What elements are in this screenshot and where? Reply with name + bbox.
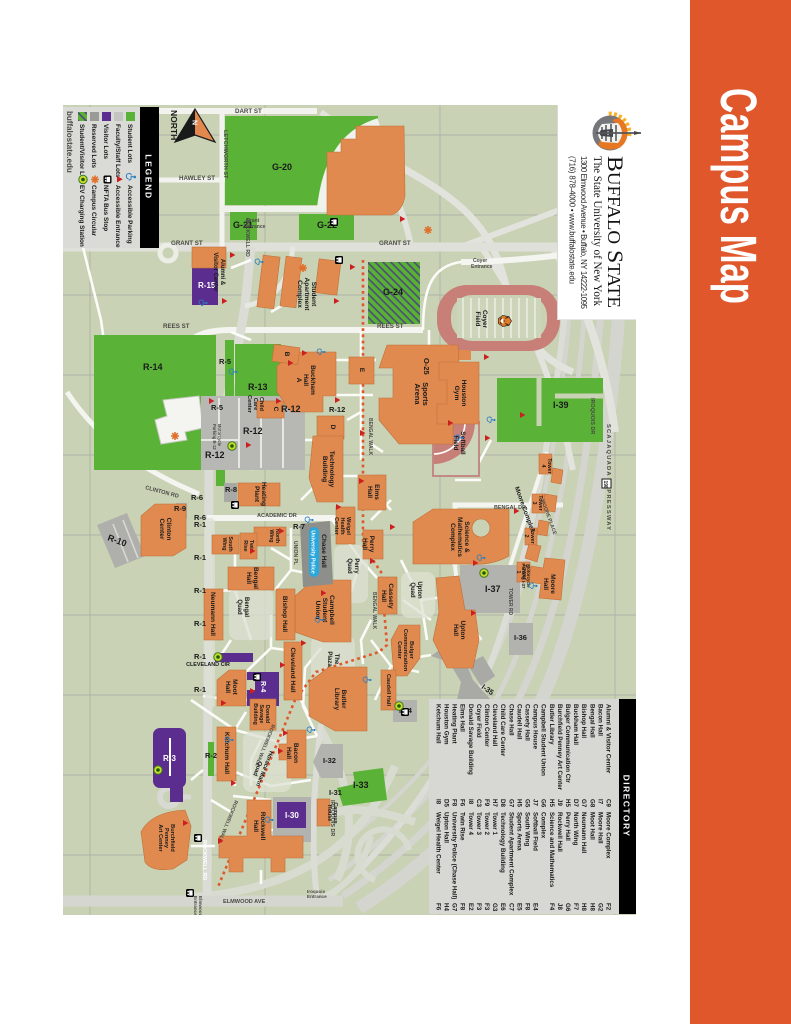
svg-text:R-1: R-1 bbox=[194, 586, 206, 595]
svg-text:E4: E4 bbox=[532, 903, 539, 911]
svg-text:Motorcycle: Motorcycle bbox=[217, 424, 222, 447]
svg-text:R-12: R-12 bbox=[329, 405, 345, 414]
svg-text:DART ST: DART ST bbox=[235, 108, 262, 115]
svg-text:Complex: Complex bbox=[540, 812, 547, 839]
svg-text:G6: G6 bbox=[540, 799, 547, 808]
svg-text:Complex: Complex bbox=[296, 280, 303, 308]
svg-text:University Police (Chase Hall): University Police (Chase Hall) bbox=[451, 812, 458, 899]
svg-text:Rise: Rise bbox=[242, 540, 248, 551]
svg-text:Technology: Technology bbox=[328, 451, 335, 488]
svg-text:Buckham: Buckham bbox=[309, 365, 316, 395]
svg-text:CLEVELAND CIR: CLEVELAND CIR bbox=[186, 662, 230, 668]
svg-text:R-12: R-12 bbox=[205, 450, 225, 460]
svg-text:REES ST: REES ST bbox=[163, 323, 190, 330]
svg-text:Campus Circular: Campus Circular bbox=[90, 185, 97, 237]
svg-text:Clinton: Clinton bbox=[165, 518, 172, 541]
svg-text:Bishop Hall: Bishop Hall bbox=[580, 704, 587, 738]
svg-text:F6: F6 bbox=[459, 799, 466, 807]
svg-text:Tower: Tower bbox=[537, 495, 543, 511]
svg-text:Cleveland Hall: Cleveland Hall bbox=[491, 704, 498, 747]
svg-text:E: E bbox=[358, 368, 365, 373]
svg-text:H5: H5 bbox=[548, 799, 555, 807]
svg-text:Quad: Quad bbox=[409, 582, 415, 598]
svg-text:Savage: Savage bbox=[258, 705, 264, 724]
svg-text:I-33: I-33 bbox=[353, 780, 369, 790]
svg-text:G3: G3 bbox=[491, 903, 498, 912]
svg-text:3: 3 bbox=[531, 502, 537, 505]
svg-text:Entrance: Entrance bbox=[193, 896, 198, 916]
svg-text:House: House bbox=[326, 805, 332, 821]
svg-text:Bengal: Bengal bbox=[243, 597, 249, 617]
svg-text:Campus: Campus bbox=[332, 802, 338, 823]
svg-text:C: C bbox=[272, 407, 279, 412]
svg-text:Moore Hall: Moore Hall bbox=[596, 812, 603, 844]
svg-text:B: B bbox=[283, 352, 290, 357]
svg-text:G7: G7 bbox=[451, 903, 458, 912]
svg-text:I-32: I-32 bbox=[323, 756, 336, 765]
svg-text:A: A bbox=[295, 378, 302, 383]
svg-text:LEGEND: LEGEND bbox=[144, 154, 154, 199]
svg-text:Clinton Center: Clinton Center bbox=[483, 704, 490, 747]
svg-text:Gym: Gym bbox=[453, 386, 460, 401]
svg-text:Science &: Science & bbox=[463, 521, 470, 553]
svg-text:Entrance: Entrance bbox=[244, 224, 266, 230]
svg-text:J8: J8 bbox=[556, 903, 563, 910]
svg-text:Cleveland Hall: Cleveland Hall bbox=[289, 647, 296, 692]
svg-text:buffalostate.edu: buffalostate.edu bbox=[65, 111, 74, 173]
svg-text:Caudell Hall: Caudell Hall bbox=[385, 674, 391, 706]
svg-text:J7: J7 bbox=[532, 799, 539, 806]
svg-text:Butler: Butler bbox=[340, 689, 347, 708]
svg-text:G7: G7 bbox=[580, 799, 587, 808]
svg-text:Alumni & Visitor Center: Alumni & Visitor Center bbox=[605, 704, 612, 774]
svg-text:Butler Library: Butler Library bbox=[548, 704, 555, 745]
svg-text:Caudell Hall: Caudell Hall bbox=[515, 704, 522, 740]
svg-text:GRANT ST: GRANT ST bbox=[379, 240, 411, 247]
svg-text:Campus Map: Campus Map bbox=[710, 88, 767, 304]
svg-text:R-7: R-7 bbox=[293, 522, 305, 531]
svg-text:Parking I-37: Parking I-37 bbox=[521, 564, 526, 589]
svg-text:Hall: Hall bbox=[542, 578, 549, 590]
svg-text:Reserved Lots: Reserved Lots bbox=[90, 124, 97, 168]
svg-text:Cassety: Cassety bbox=[387, 583, 394, 609]
svg-text:F4: F4 bbox=[548, 903, 555, 911]
svg-text:Bishop Hall: Bishop Hall bbox=[281, 596, 288, 632]
svg-text:F2: F2 bbox=[605, 903, 612, 911]
svg-text:R-8: R-8 bbox=[225, 485, 237, 494]
svg-text:HAWLEY ST: HAWLEY ST bbox=[179, 175, 215, 182]
svg-text:Technology Building: Technology Building bbox=[499, 812, 506, 873]
svg-text:Tower 3: Tower 3 bbox=[475, 812, 482, 835]
svg-text:G6: G6 bbox=[564, 903, 571, 912]
svg-text:R-9: R-9 bbox=[174, 504, 186, 513]
svg-text:IROQUOIS DR: IROQUOIS DR bbox=[589, 398, 595, 434]
svg-text:Ketchum Hall: Ketchum Hall bbox=[223, 732, 230, 774]
svg-text:Hall: Hall bbox=[224, 681, 231, 693]
svg-text:G7: G7 bbox=[507, 799, 514, 808]
svg-text:H5: H5 bbox=[564, 799, 571, 807]
svg-text:F7: F7 bbox=[572, 903, 579, 911]
svg-text:Center: Center bbox=[333, 517, 339, 536]
svg-text:Hall: Hall bbox=[285, 747, 292, 759]
svg-text:R-1: R-1 bbox=[194, 652, 206, 661]
svg-text:Plaza: Plaza bbox=[326, 651, 332, 667]
svg-text:Tower: Tower bbox=[546, 458, 552, 474]
svg-text:Perry: Perry bbox=[353, 558, 359, 574]
svg-text:Moot Hall: Moot Hall bbox=[588, 812, 595, 840]
svg-text:G8: G8 bbox=[588, 799, 595, 808]
svg-text:Health: Health bbox=[339, 517, 345, 535]
svg-text:I8: I8 bbox=[467, 799, 474, 805]
svg-text:E2: E2 bbox=[467, 903, 474, 911]
svg-text:G-24: G-24 bbox=[383, 287, 403, 297]
svg-text:Entrance: Entrance bbox=[307, 894, 327, 899]
svg-text:The State University of New Yo: The State University of New York bbox=[591, 156, 603, 306]
svg-text:BENGAL WALK: BENGAL WALK bbox=[371, 592, 377, 630]
svg-text:Accessible Parking: Accessible Parking bbox=[126, 185, 133, 244]
svg-text:Buckham Hall: Buckham Hall bbox=[572, 704, 579, 745]
svg-text:H5: H5 bbox=[515, 799, 522, 807]
svg-text:Moore: Moore bbox=[549, 574, 556, 594]
svg-text:REES ST: REES ST bbox=[377, 323, 404, 330]
svg-text:(716) 878-4000 • www.buffalost: (716) 878-4000 • www.buffalostate.edu bbox=[568, 156, 577, 284]
svg-text:Chase Hall: Chase Hall bbox=[507, 704, 514, 736]
svg-text:Quad: Quad bbox=[346, 558, 352, 574]
svg-text:C7: C7 bbox=[507, 903, 514, 911]
svg-text:Moot: Moot bbox=[231, 679, 238, 696]
svg-text:Science and Mathematics: Science and Mathematics bbox=[548, 812, 555, 888]
svg-text:H7: H7 bbox=[491, 799, 498, 807]
svg-text:Bacon: Bacon bbox=[292, 743, 299, 763]
svg-text:ACADEMIC DR: ACADEMIC DR bbox=[257, 513, 297, 519]
svg-text:Elmwood: Elmwood bbox=[198, 896, 203, 917]
svg-text:Apartment: Apartment bbox=[303, 278, 310, 312]
svg-text:Alumni &: Alumni & bbox=[219, 259, 225, 286]
svg-text:Hall: Hall bbox=[366, 486, 373, 498]
svg-text:Twin Rise: Twin Rise bbox=[459, 812, 466, 841]
svg-text:Faculty/Staff Lots: Faculty/Staff Lots bbox=[114, 124, 121, 178]
svg-text:4: 4 bbox=[540, 465, 546, 468]
svg-text:Quad: Quad bbox=[236, 599, 242, 615]
svg-text:Neumann Hall: Neumann Hall bbox=[209, 592, 216, 636]
svg-text:GRANT ST: GRANT ST bbox=[171, 240, 203, 247]
svg-text:South: South bbox=[227, 536, 233, 551]
svg-text:Elms: Elms bbox=[373, 484, 380, 500]
svg-text:I-37: I-37 bbox=[485, 584, 501, 594]
svg-text:R-2: R-2 bbox=[205, 751, 217, 760]
svg-text:The: The bbox=[333, 654, 339, 665]
svg-text:Tower 1: Tower 1 bbox=[491, 812, 498, 835]
svg-text:Center: Center bbox=[158, 519, 165, 540]
svg-text:D8: D8 bbox=[499, 799, 506, 807]
svg-text:N: N bbox=[191, 120, 198, 125]
svg-text:SCAJAQUADA EXPRESSWAY: SCAJAQUADA EXPRESSWAY bbox=[605, 424, 611, 530]
svg-text:Art Center: Art Center bbox=[157, 824, 163, 852]
svg-text:R-5: R-5 bbox=[211, 403, 223, 412]
svg-text:Campus House: Campus House bbox=[532, 704, 539, 750]
svg-text:Child: Child bbox=[258, 397, 264, 412]
svg-text:F8: F8 bbox=[451, 799, 458, 807]
svg-text:Upton Hall: Upton Hall bbox=[443, 812, 450, 843]
svg-text:1300 Elmwood Avenue • Buffalo,: 1300 Elmwood Avenue • Buffalo, NY 14222-… bbox=[579, 156, 588, 310]
svg-text:Penney: Penney bbox=[163, 828, 169, 849]
svg-text:Weigel: Weigel bbox=[345, 517, 351, 535]
svg-text:R-1: R-1 bbox=[194, 553, 206, 562]
svg-text:E5: E5 bbox=[515, 903, 522, 911]
svg-text:H8: H8 bbox=[588, 903, 595, 911]
svg-text:Moore Complex: Moore Complex bbox=[605, 812, 612, 859]
svg-text:Upton: Upton bbox=[459, 620, 466, 639]
svg-text:F3: F3 bbox=[483, 903, 490, 911]
svg-text:F3: F3 bbox=[475, 903, 482, 911]
svg-text:H4: H4 bbox=[443, 903, 450, 911]
svg-text:Visitor Center: Visitor Center bbox=[212, 252, 218, 292]
svg-text:Student/Visitor Lot: Student/Visitor Lot bbox=[78, 124, 85, 182]
svg-text:Coyer: Coyer bbox=[481, 310, 488, 329]
svg-text:North Wing: North Wing bbox=[572, 812, 579, 845]
svg-text:F8: F8 bbox=[524, 903, 531, 911]
svg-text:Hall: Hall bbox=[380, 590, 387, 602]
svg-text:University Police: University Police bbox=[310, 530, 316, 573]
svg-text:Student: Student bbox=[310, 282, 317, 307]
svg-text:Wing: Wing bbox=[268, 529, 274, 542]
svg-text:2: 2 bbox=[523, 535, 529, 538]
svg-text:Parking B-12: Parking B-12 bbox=[212, 424, 217, 450]
svg-text:Library: Library bbox=[333, 688, 340, 711]
svg-text:Bengal Hall: Bengal Hall bbox=[588, 704, 595, 738]
svg-text:Student Apartment Complex: Student Apartment Complex bbox=[507, 812, 514, 896]
svg-text:Arena: Arena bbox=[413, 384, 422, 406]
svg-text:Bengal: Bengal bbox=[252, 567, 259, 589]
svg-text:Cassety Hall: Cassety Hall bbox=[524, 704, 531, 741]
svg-text:UNION PL: UNION PL bbox=[292, 541, 298, 565]
svg-text:Wing: Wing bbox=[221, 537, 227, 550]
svg-text:TOWER RD: TOWER RD bbox=[507, 588, 513, 616]
svg-text:G2: G2 bbox=[596, 903, 603, 912]
svg-text:Ketchum Hall: Ketchum Hall bbox=[434, 704, 441, 744]
svg-text:F9: F9 bbox=[483, 799, 490, 807]
svg-text:I7: I7 bbox=[596, 799, 603, 805]
svg-text:Rockwell: Rockwell bbox=[259, 812, 266, 841]
svg-text:Softball Field: Softball Field bbox=[532, 812, 539, 851]
svg-text:Center: Center bbox=[396, 641, 402, 660]
svg-text:ROCKWELL RD: ROCKWELL RD bbox=[201, 840, 207, 880]
svg-text:Houston Gym: Houston Gym bbox=[443, 704, 450, 745]
svg-text:R-1: R-1 bbox=[194, 520, 206, 529]
svg-text:Donald: Donald bbox=[264, 705, 270, 723]
svg-text:R-12: R-12 bbox=[243, 426, 263, 436]
svg-text:G-20: G-20 bbox=[272, 162, 292, 172]
svg-text:R-1: R-1 bbox=[194, 619, 206, 628]
svg-text:Building: Building bbox=[321, 456, 328, 482]
svg-text:Complex: Complex bbox=[449, 523, 456, 551]
svg-text:F6: F6 bbox=[434, 903, 441, 911]
svg-text:E6: E6 bbox=[499, 903, 506, 911]
svg-text:Tower 4: Tower 4 bbox=[467, 812, 474, 835]
svg-text:Bulger Communication Ctr: Bulger Communication Ctr bbox=[564, 704, 571, 783]
svg-text:Softball: Softball bbox=[459, 431, 466, 455]
svg-text:Sports: Sports bbox=[421, 382, 430, 405]
svg-text:Houston: Houston bbox=[460, 380, 467, 407]
svg-text:Heating: Heating bbox=[260, 482, 267, 506]
svg-text:Rockwell Hall: Rockwell Hall bbox=[556, 812, 563, 852]
svg-text:H8: H8 bbox=[580, 903, 587, 911]
svg-text:I-30: I-30 bbox=[285, 811, 299, 820]
svg-text:Chase Hall: Chase Hall bbox=[320, 534, 327, 568]
svg-text:C3: C3 bbox=[475, 799, 482, 807]
svg-text:NORTH: NORTH bbox=[169, 110, 179, 140]
svg-text:Field: Field bbox=[474, 312, 481, 327]
svg-text:EV Charging Station: EV Charging Station bbox=[78, 185, 85, 247]
svg-text:Sports Arena: Sports Arena bbox=[515, 812, 522, 851]
svg-text:ELMWOOD AVE: ELMWOOD AVE bbox=[223, 899, 266, 905]
svg-text:DIRECTORY: DIRECTORY bbox=[622, 775, 632, 838]
svg-text:I8: I8 bbox=[434, 799, 441, 805]
svg-text:Bulger: Bulger bbox=[408, 641, 414, 660]
svg-text:NFTA Bus Stop: NFTA Bus Stop bbox=[102, 185, 109, 231]
svg-text:R-12: R-12 bbox=[281, 404, 301, 414]
svg-text:Visitor Lots: Visitor Lots bbox=[102, 124, 109, 159]
svg-text:D7: D7 bbox=[572, 799, 579, 807]
svg-text:Hall: Hall bbox=[452, 624, 459, 636]
svg-text:D: D bbox=[329, 425, 336, 430]
svg-text:I-39: I-39 bbox=[553, 400, 569, 410]
svg-text:BENGAL WALK: BENGAL WALK bbox=[367, 418, 373, 456]
svg-text:Elms Hall: Elms Hall bbox=[459, 704, 466, 732]
svg-text:Motorcycle: Motorcycle bbox=[526, 564, 531, 588]
svg-text:Hall: Hall bbox=[302, 374, 309, 386]
svg-text:Hall: Hall bbox=[245, 572, 252, 584]
svg-text:LETCHWORTH ST: LETCHWORTH ST bbox=[222, 130, 228, 179]
svg-text:Plant: Plant bbox=[253, 486, 260, 503]
svg-text:Center: Center bbox=[246, 395, 252, 414]
svg-text:I-31: I-31 bbox=[329, 788, 342, 797]
svg-text:Burchfield Penney Art Center: Burchfield Penney Art Center bbox=[556, 704, 563, 791]
svg-text:Hall: Hall bbox=[252, 820, 259, 832]
svg-text:D5: D5 bbox=[443, 799, 450, 807]
svg-text:Campbell Student Union: Campbell Student Union bbox=[540, 704, 547, 776]
svg-text:Campbell: Campbell bbox=[328, 595, 335, 625]
svg-text:R-3: R-3 bbox=[163, 754, 176, 763]
svg-text:Mathematics: Mathematics bbox=[456, 517, 463, 557]
svg-text:Perry: Perry bbox=[368, 536, 375, 553]
svg-text:R-6: R-6 bbox=[191, 493, 203, 502]
svg-text:198: 198 bbox=[602, 481, 608, 490]
svg-text:R-13: R-13 bbox=[248, 382, 268, 392]
svg-text:I-36: I-36 bbox=[514, 633, 527, 642]
svg-text:Coyer Field: Coyer Field bbox=[475, 704, 482, 738]
svg-text:Perry Hall: Perry Hall bbox=[564, 812, 571, 841]
svg-text:Heating Plant: Heating Plant bbox=[451, 704, 458, 744]
svg-text:Bacon Hall: Bacon Hall bbox=[596, 704, 603, 736]
svg-text:Building: Building bbox=[252, 703, 258, 725]
svg-text:Donald Savage Building: Donald Savage Building bbox=[467, 704, 474, 775]
svg-text:Weigel Health Center: Weigel Health Center bbox=[434, 812, 441, 874]
svg-text:Care: Care bbox=[252, 398, 258, 410]
svg-text:South Wing: South Wing bbox=[524, 812, 531, 847]
svg-text:Entrance: Entrance bbox=[471, 264, 493, 270]
svg-text:R-14: R-14 bbox=[143, 362, 163, 372]
svg-text:R-4: R-4 bbox=[259, 681, 266, 692]
svg-text:Tower 2: Tower 2 bbox=[483, 812, 490, 835]
svg-text:Child Care Center: Child Care Center bbox=[499, 704, 506, 757]
svg-text:Communication: Communication bbox=[402, 629, 408, 672]
svg-text:Hall: Hall bbox=[361, 538, 368, 550]
svg-text:C9: C9 bbox=[605, 799, 612, 807]
svg-text:Accessible Entrance: Accessible Entrance bbox=[114, 185, 121, 248]
svg-text:J9: J9 bbox=[556, 799, 563, 806]
svg-text:Upton: Upton bbox=[416, 581, 422, 599]
svg-text:F8: F8 bbox=[459, 903, 466, 911]
svg-text:Student Lots: Student Lots bbox=[126, 124, 133, 163]
svg-text:O-25: O-25 bbox=[422, 358, 431, 375]
svg-text:R-5: R-5 bbox=[219, 357, 231, 366]
svg-text:R-1: R-1 bbox=[194, 685, 206, 694]
svg-text:Neumann Hall: Neumann Hall bbox=[580, 812, 587, 854]
svg-text:G5: G5 bbox=[524, 799, 531, 808]
svg-text:Burchfield: Burchfield bbox=[169, 824, 175, 852]
